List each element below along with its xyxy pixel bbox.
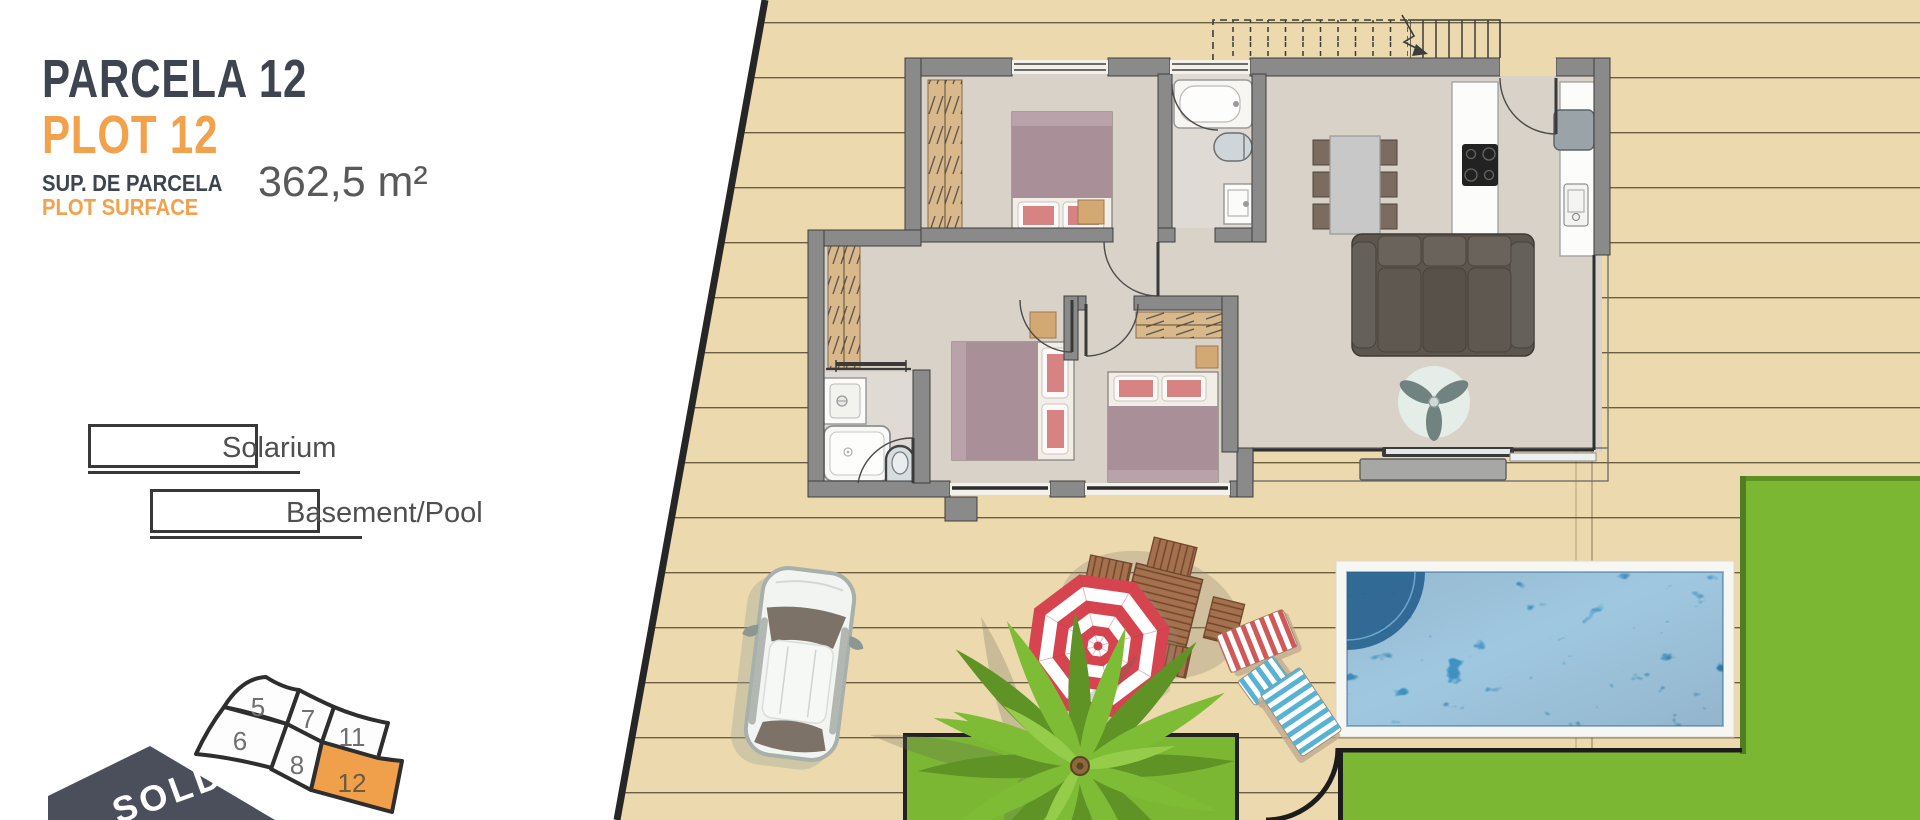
nightstand bbox=[1078, 200, 1104, 224]
kitchen-island bbox=[1452, 82, 1498, 246]
dining-chair bbox=[1380, 140, 1397, 165]
surface-label-es: SUP. DE PARCELA bbox=[42, 170, 222, 197]
entry-notch bbox=[1500, 58, 1556, 76]
wardrobe-bedroom3 bbox=[1136, 312, 1224, 338]
dining-table bbox=[1330, 136, 1380, 234]
wardrobe-bedroom2 bbox=[828, 246, 860, 368]
dining-chair bbox=[1313, 172, 1330, 197]
bed-bedroom2 bbox=[952, 342, 1074, 460]
page-title-es: PARCELA 12 bbox=[42, 48, 307, 110]
kitchen-sink bbox=[1564, 184, 1588, 226]
sink-bathroom1 bbox=[1224, 184, 1252, 224]
tv-unit bbox=[1360, 447, 1514, 480]
exterior-stairs bbox=[1213, 15, 1500, 61]
pool bbox=[1336, 561, 1734, 737]
sliding-door-panel bbox=[1510, 453, 1596, 461]
dining-chair bbox=[1313, 204, 1330, 229]
kitchen-counter bbox=[1554, 82, 1594, 256]
dining-chair bbox=[1380, 204, 1397, 229]
toilet-bathroom2 bbox=[886, 446, 914, 482]
nightstand bbox=[1196, 346, 1218, 368]
sofa bbox=[1352, 234, 1534, 356]
dining-chair bbox=[1313, 140, 1330, 165]
dining-chair bbox=[1380, 172, 1397, 197]
porch-column bbox=[945, 497, 977, 521]
dining-set bbox=[1313, 136, 1397, 234]
lawn-right-strip bbox=[1740, 476, 1920, 820]
toilet-bathroom1 bbox=[1214, 133, 1252, 161]
nightstand bbox=[1030, 312, 1056, 338]
page-title-en: PLOT 12 bbox=[42, 104, 218, 166]
legend-label-basement-pool: Basement/Pool bbox=[286, 497, 483, 530]
surface-value: 362,5 m² bbox=[258, 158, 428, 207]
lawn-bottom-right bbox=[1338, 748, 1742, 820]
page: 5 7 11 6 8 12 SOLD PARCELA 12 PLOT 12 SU… bbox=[0, 0, 1920, 820]
wardrobe-bedroom1 bbox=[928, 80, 962, 228]
surface-label-en: PLOT SURFACE bbox=[42, 194, 198, 221]
bathtub bbox=[1174, 80, 1252, 128]
bed-bedroom3 bbox=[1108, 372, 1218, 482]
info-panel: PARCELA 12 PLOT 12 SUP. DE PARCELA PLOT … bbox=[0, 0, 640, 820]
house bbox=[808, 58, 1610, 521]
sink-bathroom2 bbox=[824, 378, 866, 424]
shower bbox=[824, 426, 890, 481]
legend-label-solarium: Solarium bbox=[222, 432, 336, 465]
fridge bbox=[1554, 110, 1594, 150]
